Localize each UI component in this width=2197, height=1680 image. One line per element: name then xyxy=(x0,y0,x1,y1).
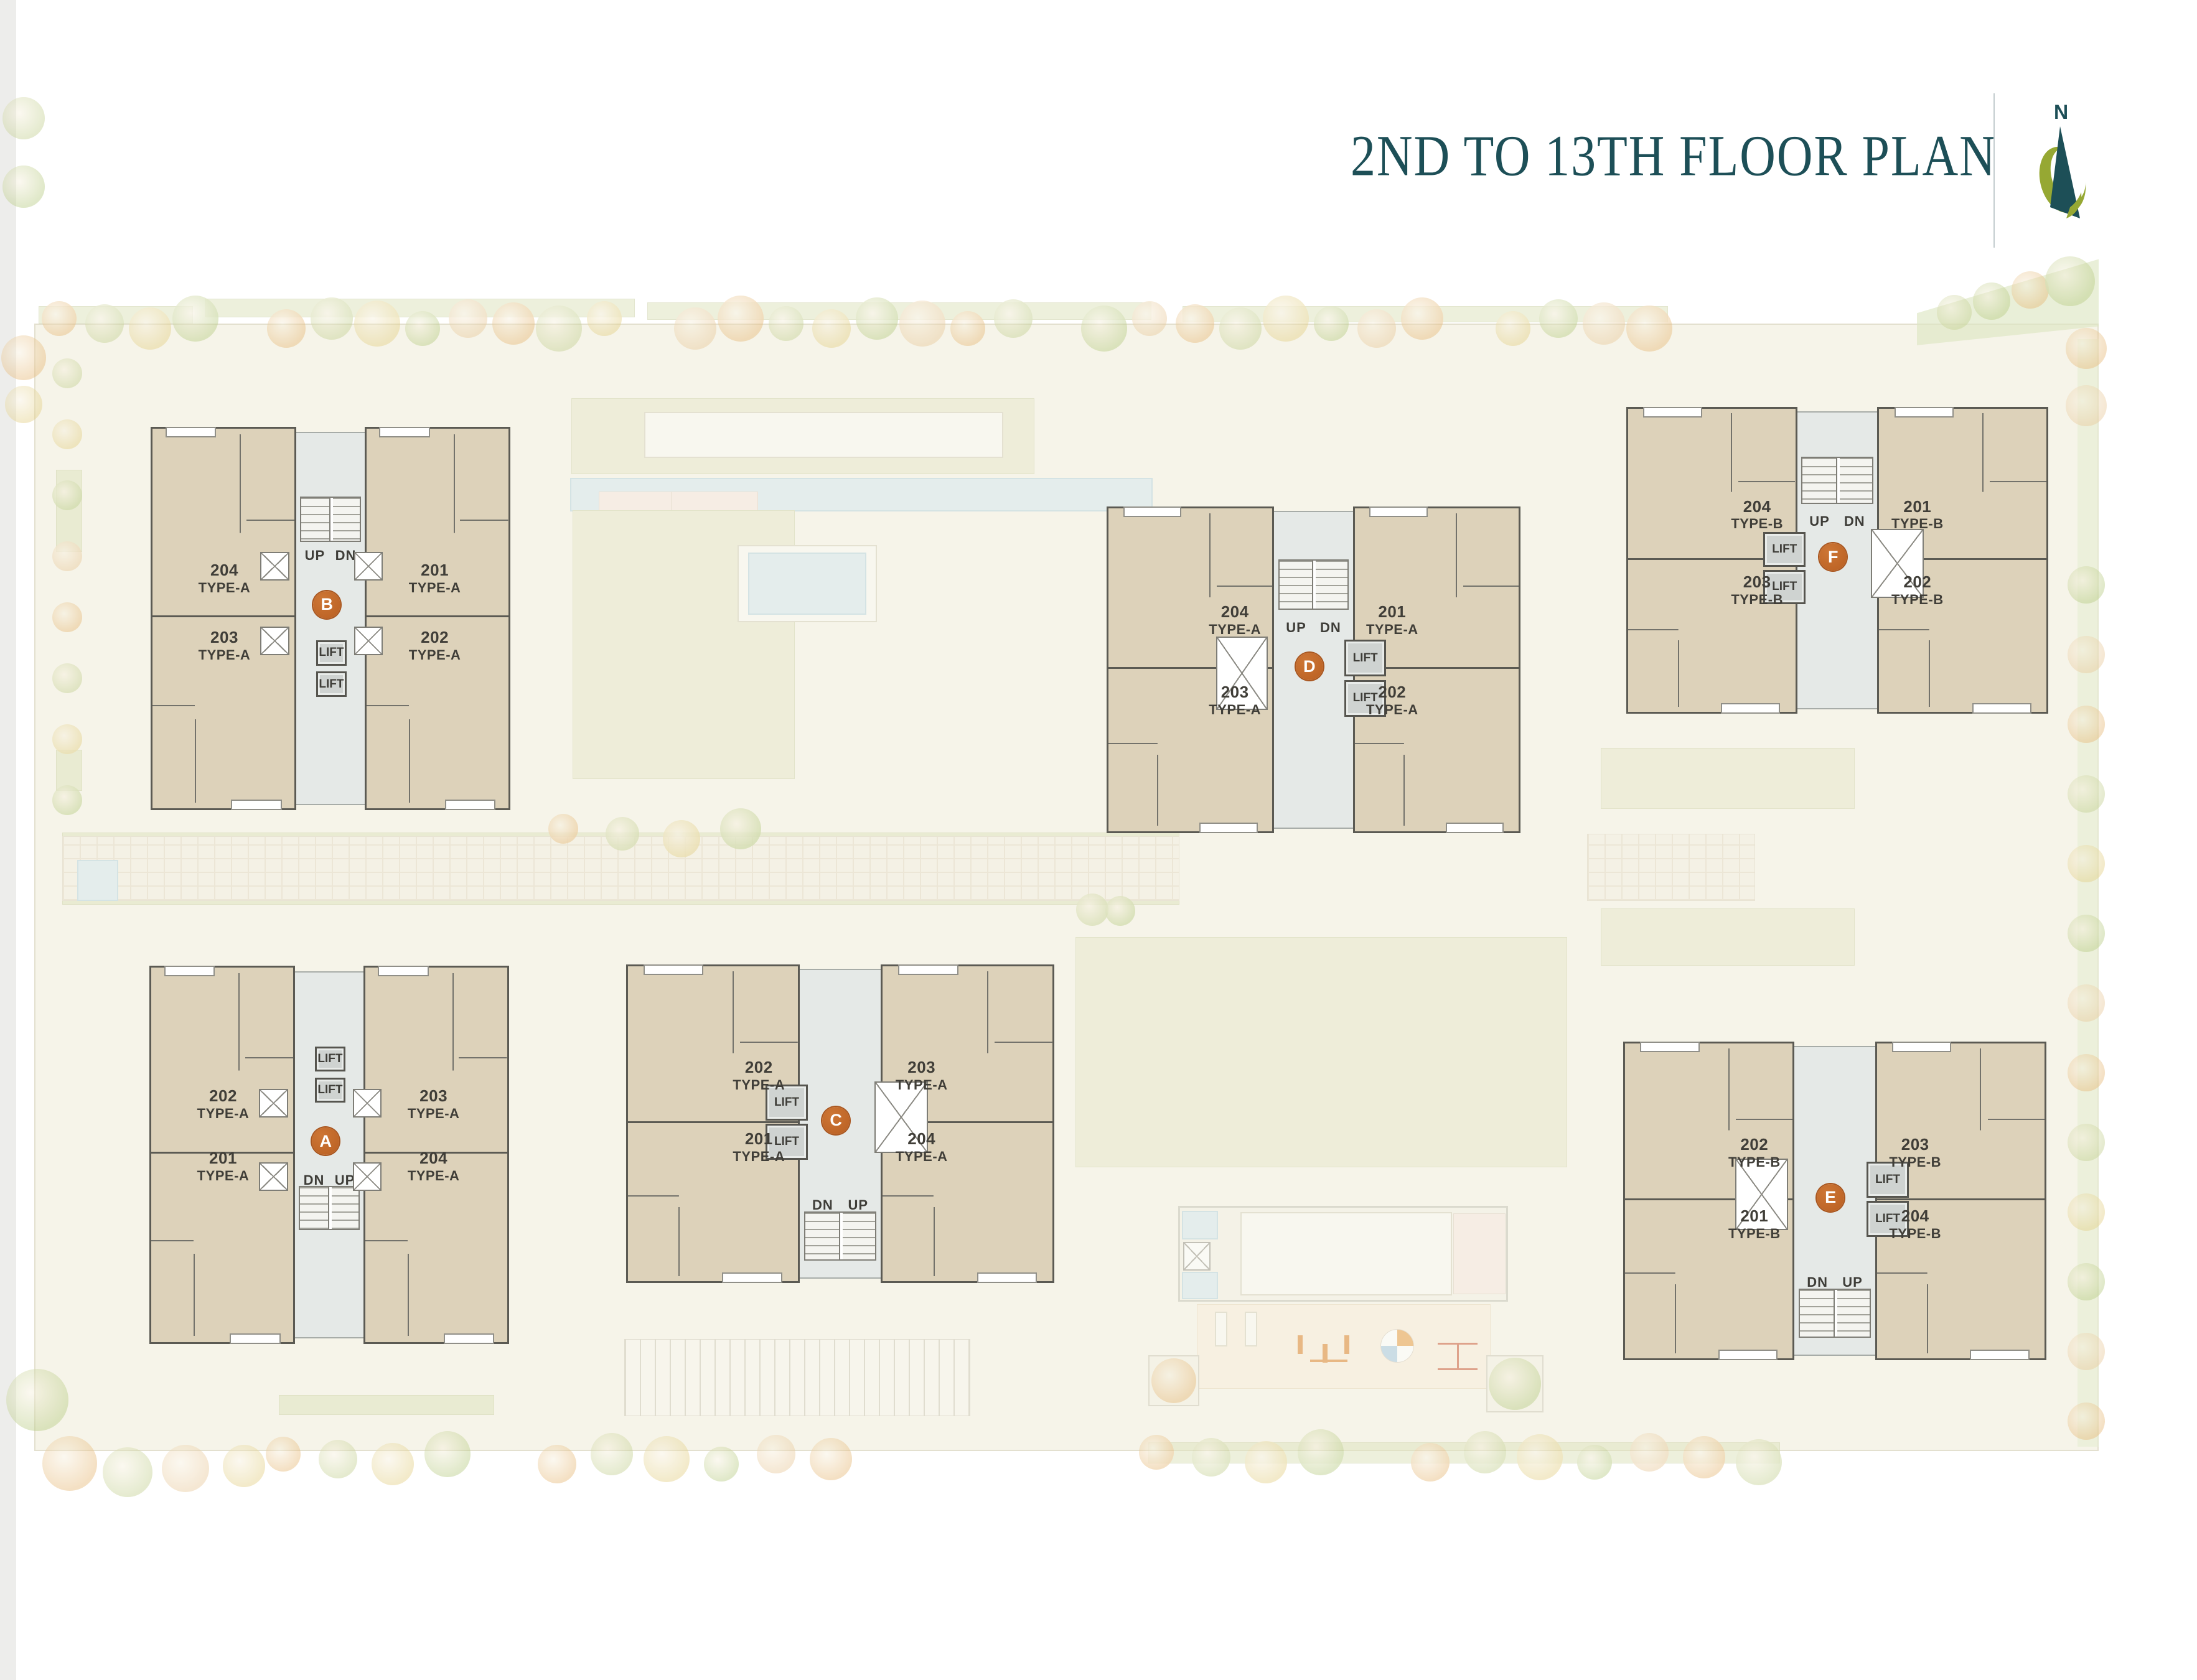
stair-label-left: UP xyxy=(1809,513,1830,530)
stair-label-left: UP xyxy=(305,548,326,564)
header-divider xyxy=(1993,93,1995,248)
tree-icon xyxy=(162,1445,209,1492)
apartment-wing-left xyxy=(151,427,296,811)
building-B: UP DN LIFT LIFT B 204TYPE-A 201TYPE-A 20… xyxy=(151,422,510,815)
building-D: UP DN LIFT LIFT D 204TYPE-A 201TYPE-A 20… xyxy=(1107,503,1520,837)
tree-icon xyxy=(103,1447,152,1497)
site-right-green-strip xyxy=(2078,339,2099,1447)
building-A: DN UP LIFT LIFT A 202TYPE-A 203TYPE-A 20… xyxy=(149,961,509,1348)
stair-label-right: UP xyxy=(335,1172,355,1188)
unit-label-bottom-right: 204TYPE-A xyxy=(866,1130,977,1164)
lift-1-label: LIFT xyxy=(1353,651,1378,665)
page-title: 2ND TO 13TH FLOOR PLAN xyxy=(1351,122,1997,189)
unit-label-top-right: 203TYPE-B xyxy=(1860,1136,1970,1170)
building-E: DN UP LIFT LIFT E 202TYPE-B 203TYPE-B 20… xyxy=(1623,1038,2046,1364)
building-F: UP DN LIFT LIFT F 204TYPE-B 201TYPE-B 20… xyxy=(1626,403,2048,717)
building-badge: B xyxy=(313,591,340,618)
tree-icon xyxy=(704,1447,739,1482)
building-badge: C xyxy=(822,1107,850,1134)
unit-label-bottom-right: 204TYPE-B xyxy=(1860,1207,1970,1241)
landscape-feature xyxy=(205,299,635,317)
stair-label-left: DN xyxy=(812,1197,833,1213)
unit-label-bottom-left: 203TYPE-B xyxy=(1702,573,1812,607)
unit-label-top-right: 201TYPE-A xyxy=(388,561,481,595)
unit-label-top-right: 203TYPE-A xyxy=(386,1087,480,1121)
unit-label-top-left: 202TYPE-B xyxy=(1699,1136,1809,1170)
unit-label-bottom-left: 201TYPE-A xyxy=(703,1130,815,1164)
staircase xyxy=(299,1186,360,1231)
lift-2: LIFT xyxy=(315,1078,345,1103)
lift-2: LIFT xyxy=(316,671,347,697)
stair-label-left: DN xyxy=(304,1172,325,1188)
staircase xyxy=(1799,1289,1871,1338)
staircase xyxy=(804,1211,877,1261)
stair-label-right: UP xyxy=(848,1197,868,1213)
lift-1-label: LIFT xyxy=(1875,1173,1900,1187)
lift-1-label: LIFT xyxy=(1772,543,1797,556)
unit-label-top-left: 202TYPE-A xyxy=(176,1087,269,1121)
stair-label-left: DN xyxy=(1807,1274,1828,1290)
stair-label-left: UP xyxy=(1286,620,1306,636)
unit-label-top-right: 203TYPE-A xyxy=(866,1058,977,1093)
staircase xyxy=(1278,559,1349,610)
building-badge: A xyxy=(312,1127,339,1155)
stair-label-right: DN xyxy=(335,548,357,564)
apartment-wing-right xyxy=(365,427,510,811)
stair-label-right: UP xyxy=(1842,1274,1863,1290)
staircase xyxy=(1801,457,1873,504)
north-compass-icon: N xyxy=(2024,101,2099,225)
unit-label-bottom-right: 202TYPE-A xyxy=(1338,683,1446,717)
unit-label-bottom-right: 202TYPE-B xyxy=(1863,573,1972,607)
building-core xyxy=(293,971,365,1339)
unit-label-top-right: 201TYPE-B xyxy=(1863,498,1972,532)
building-core xyxy=(294,432,367,805)
service-shaft-icon xyxy=(354,627,383,655)
lift-1-label: LIFT xyxy=(774,1096,799,1109)
lift-2-label: LIFT xyxy=(319,678,344,691)
unit-label-top-left: 204TYPE-A xyxy=(1181,603,1289,637)
landscape-feature xyxy=(39,306,193,324)
page-left-margin xyxy=(0,0,16,1680)
unit-label-bottom-left: 203TYPE-A xyxy=(1181,683,1289,717)
lift-1: LIFT xyxy=(1344,640,1386,676)
lift-1-label: LIFT xyxy=(319,646,344,660)
landscape-feature xyxy=(1183,306,1668,322)
lift-2-label: LIFT xyxy=(317,1083,342,1097)
unit-label-top-right: 201TYPE-A xyxy=(1338,603,1446,637)
lift-1: LIFT xyxy=(316,640,347,666)
unit-label-bottom-left: 203TYPE-A xyxy=(177,628,271,663)
compass-arrow-icon xyxy=(2029,125,2094,225)
building-badge: E xyxy=(1817,1184,1844,1211)
service-shaft-icon xyxy=(353,1162,382,1190)
building-badge: D xyxy=(1296,653,1323,680)
stair-label-right: DN xyxy=(1844,513,1865,530)
stair-direction-labels: DN UP xyxy=(797,1197,883,1213)
lift-1-label: LIFT xyxy=(317,1052,342,1066)
staircase xyxy=(300,497,361,542)
building-badge: F xyxy=(1819,543,1847,571)
unit-label-bottom-right: 204TYPE-A xyxy=(386,1149,480,1183)
service-shaft-icon xyxy=(354,552,383,581)
unit-label-bottom-right: 202TYPE-A xyxy=(388,628,481,663)
stair-direction-labels: DN UP xyxy=(1792,1274,1877,1290)
landscape-feature xyxy=(647,302,1151,320)
compass-north-label: N xyxy=(2024,101,2099,124)
floor-plan-page: 2ND TO 13TH FLOOR PLAN N UP DN LIFT LIFT… xyxy=(0,0,2197,1680)
service-shaft-icon xyxy=(353,1089,382,1117)
lift-1: LIFT xyxy=(315,1047,345,1071)
unit-label-bottom-left: 201TYPE-B xyxy=(1699,1207,1809,1241)
unit-label-top-left: 202TYPE-A xyxy=(703,1058,815,1093)
unit-label-bottom-left: 201TYPE-A xyxy=(176,1149,269,1183)
unit-label-top-left: 204TYPE-A xyxy=(177,561,271,595)
lift-1: LIFT xyxy=(1763,532,1806,567)
tree-icon xyxy=(223,1445,265,1487)
building-C: DN UP LIFT LIFT C 202TYPE-A 203TYPE-A 20… xyxy=(626,961,1054,1287)
unit-label-top-left: 204TYPE-B xyxy=(1702,498,1812,532)
